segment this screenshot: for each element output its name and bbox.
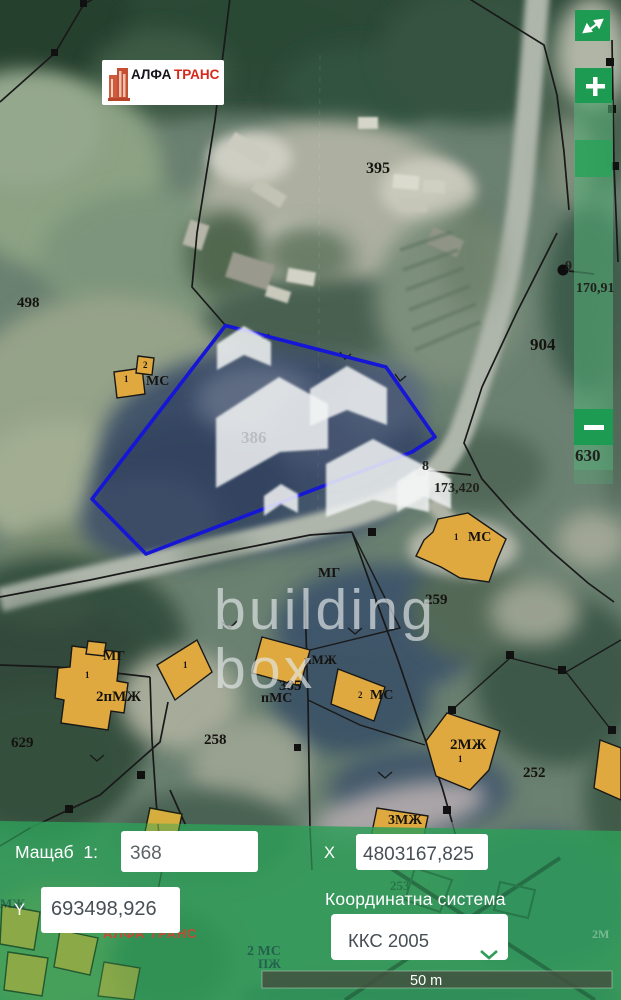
svg-text:258: 258 <box>204 732 227 748</box>
svg-text:2пМЖ: 2пМЖ <box>96 689 141 705</box>
svg-text:8: 8 <box>422 459 429 474</box>
svg-text:1: 1 <box>454 532 459 542</box>
svg-text:50 m: 50 m <box>410 973 442 989</box>
svg-text:МС: МС <box>370 688 393 703</box>
svg-text:3МЖ: 3МЖ <box>388 813 422 828</box>
svg-text:МС: МС <box>468 530 491 545</box>
svg-text:395: 395 <box>366 160 390 177</box>
svg-text:Y: Y <box>14 901 25 919</box>
svg-text:2МЖ: 2МЖ <box>450 737 487 753</box>
svg-text:252: 252 <box>523 765 546 781</box>
svg-text:1: 1 <box>458 754 463 764</box>
svg-text:Мащаб 1:: Мащаб 1: <box>15 842 98 862</box>
svg-text:ТРАНС: ТРАНС <box>174 67 220 82</box>
svg-text:1: 1 <box>124 374 129 384</box>
svg-text:629: 629 <box>11 735 34 751</box>
svg-text:2: 2 <box>143 360 148 370</box>
svg-text:4803167,825: 4803167,825 <box>363 844 474 865</box>
svg-text:170,91: 170,91 <box>576 281 615 296</box>
svg-text:building: building <box>214 578 436 642</box>
svg-text:box: box <box>214 637 316 701</box>
svg-text:904: 904 <box>530 335 556 354</box>
svg-text:МГ: МГ <box>103 649 125 664</box>
svg-text:2М: 2М <box>592 927 609 941</box>
svg-text:498: 498 <box>17 295 40 311</box>
svg-text:173,420: 173,420 <box>434 481 480 496</box>
svg-text:1: 1 <box>183 660 188 670</box>
svg-text:Координатна система: Координатна система <box>325 889 506 909</box>
svg-text:МС: МС <box>146 374 169 389</box>
svg-text:АЛФА: АЛФА <box>131 67 172 82</box>
svg-text:2: 2 <box>358 690 363 700</box>
svg-text:X: X <box>324 844 335 862</box>
svg-text:ККС 2005: ККС 2005 <box>348 930 429 951</box>
svg-text:1: 1 <box>85 670 90 680</box>
svg-text:ПЖ: ПЖ <box>258 956 281 971</box>
svg-text:386: 386 <box>241 428 267 447</box>
svg-text:693498,926: 693498,926 <box>51 898 157 920</box>
svg-text:9: 9 <box>565 259 572 274</box>
svg-text:368: 368 <box>130 843 162 864</box>
svg-text:630: 630 <box>575 446 601 465</box>
